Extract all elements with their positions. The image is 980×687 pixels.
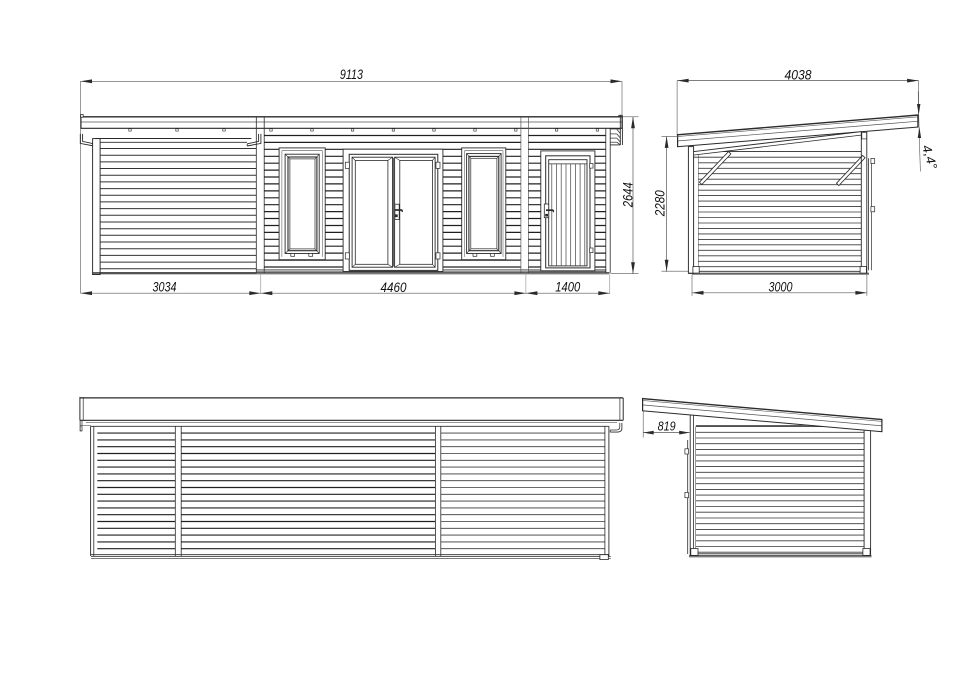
- svg-text:2644: 2644: [621, 182, 636, 208]
- svg-text:3000: 3000: [769, 280, 793, 295]
- svg-text:3034: 3034: [153, 280, 177, 295]
- svg-text:2280: 2280: [652, 190, 667, 217]
- svg-text:1400: 1400: [555, 279, 580, 294]
- svg-text:4460: 4460: [381, 280, 407, 295]
- svg-text:819: 819: [658, 418, 676, 433]
- svg-text:9113: 9113: [340, 67, 363, 82]
- svg-text:4038: 4038: [785, 67, 812, 82]
